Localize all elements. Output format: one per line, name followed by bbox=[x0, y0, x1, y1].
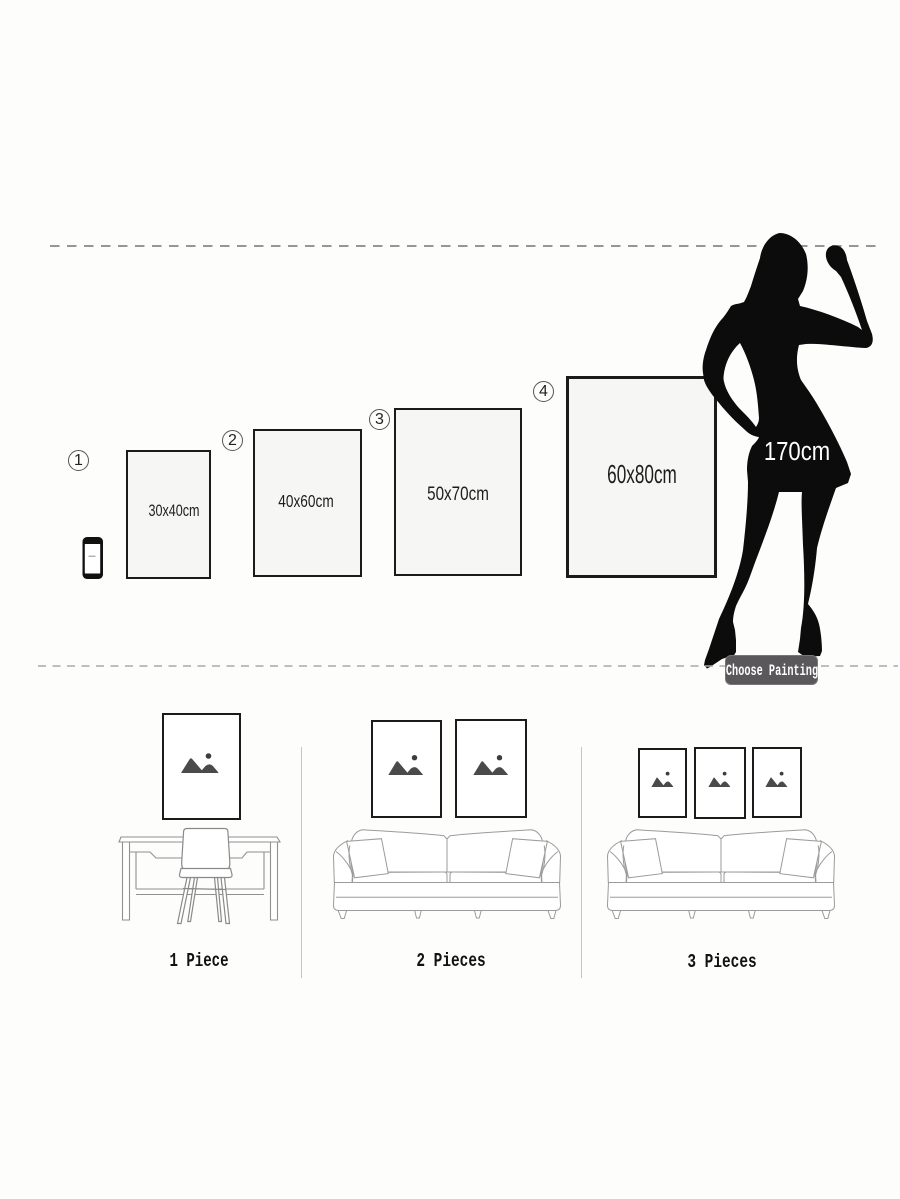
svg-text:170cm: 170cm bbox=[764, 437, 830, 466]
